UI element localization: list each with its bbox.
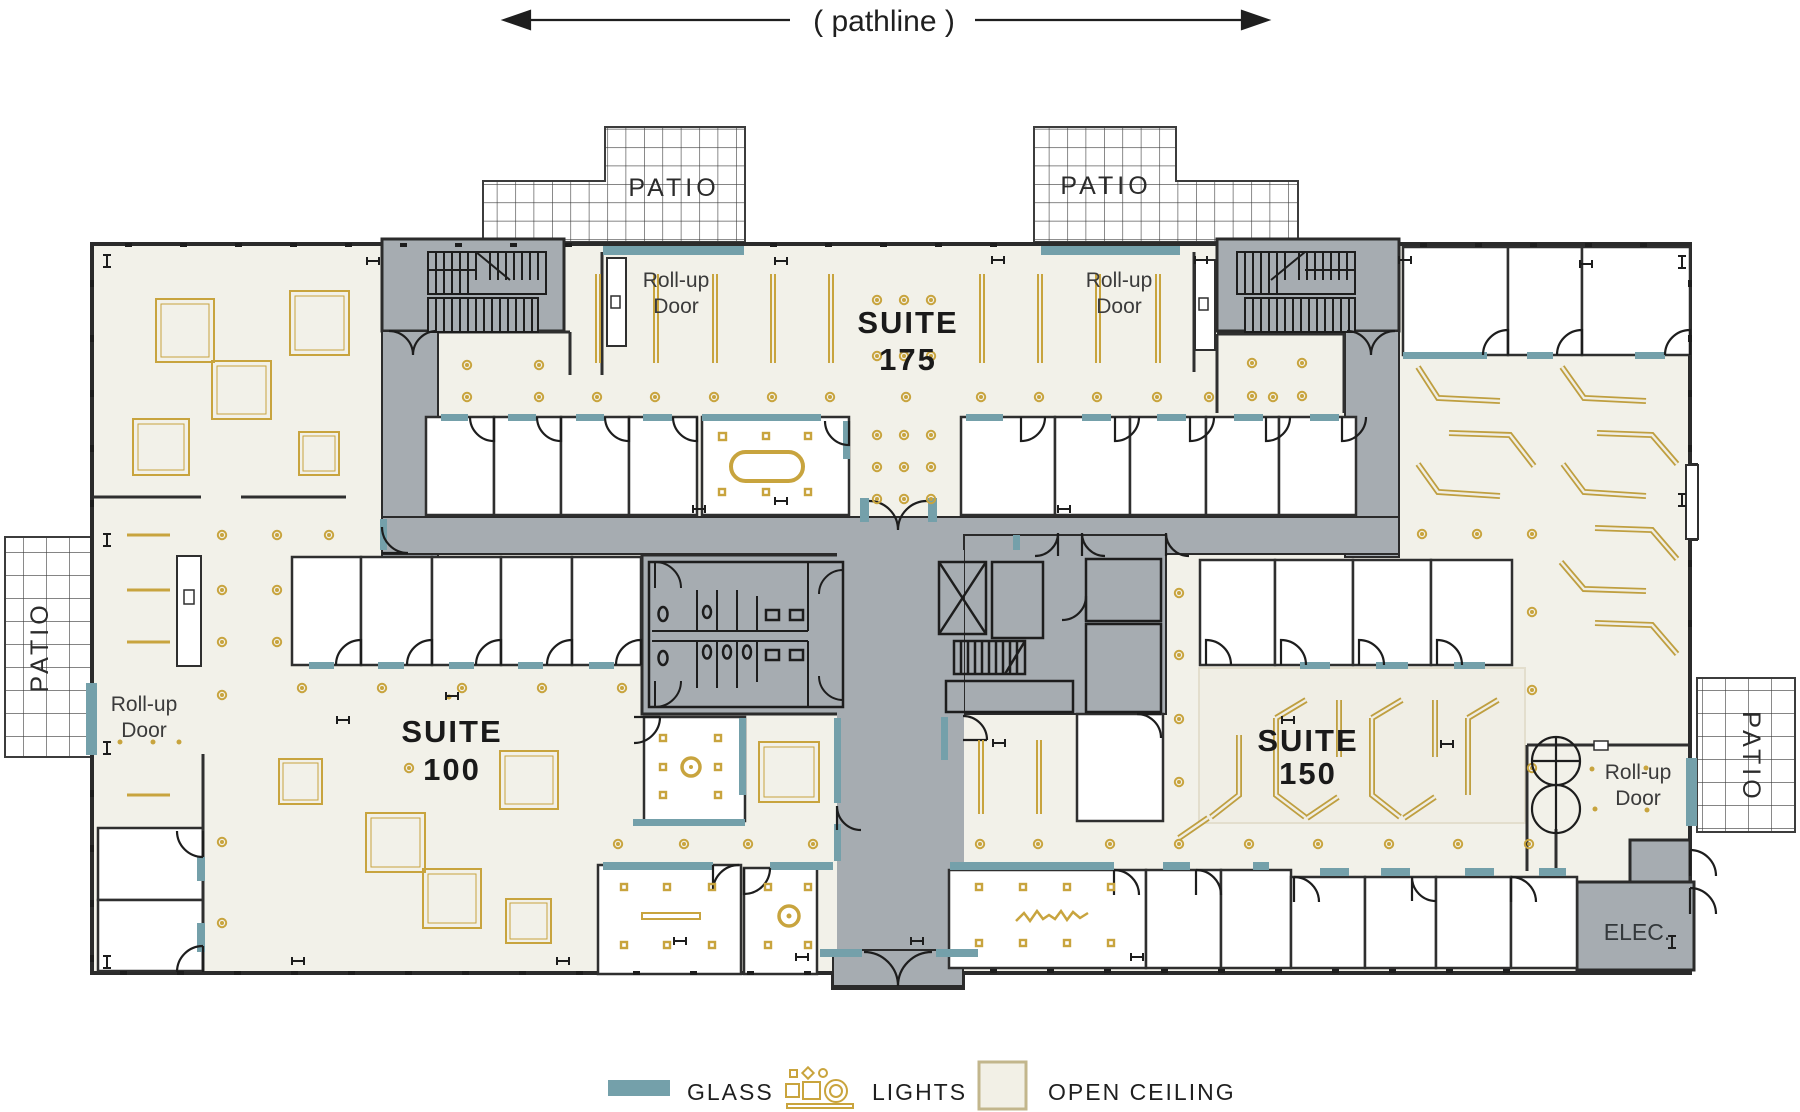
- svg-text:Door: Door: [121, 719, 167, 742]
- svg-text:PATIO: PATIO: [628, 174, 719, 202]
- svg-text:PATIO: PATIO: [26, 601, 54, 692]
- svg-text:SUITE: SUITE: [1257, 723, 1358, 758]
- svg-text:Door: Door: [1615, 787, 1661, 810]
- svg-text:OPEN CEILING: OPEN CEILING: [1048, 1079, 1236, 1105]
- svg-text:GLASS: GLASS: [687, 1079, 774, 1105]
- svg-text:LIGHTS: LIGHTS: [872, 1079, 967, 1105]
- svg-text:Door: Door: [653, 295, 699, 318]
- svg-text:Roll-up: Roll-up: [1605, 761, 1672, 784]
- svg-text:SUITE: SUITE: [401, 714, 502, 749]
- svg-text:150: 150: [1279, 756, 1337, 791]
- svg-text:Roll-up: Roll-up: [643, 269, 710, 292]
- svg-text:SUITE: SUITE: [857, 305, 958, 340]
- svg-text:100: 100: [423, 752, 481, 787]
- svg-text:PATIO: PATIO: [1060, 172, 1151, 200]
- svg-text:( pathline ): ( pathline ): [813, 5, 955, 38]
- svg-text:Roll-up: Roll-up: [1086, 269, 1153, 292]
- svg-text:PATIO: PATIO: [1737, 711, 1765, 802]
- svg-text:Roll-up: Roll-up: [111, 693, 178, 716]
- svg-text:ELEC.: ELEC.: [1604, 919, 1670, 945]
- svg-text:175: 175: [879, 342, 937, 377]
- svg-text:Door: Door: [1096, 295, 1142, 318]
